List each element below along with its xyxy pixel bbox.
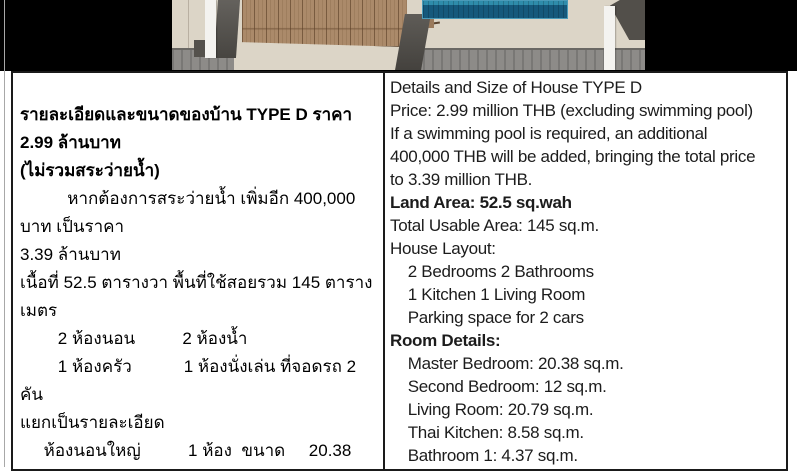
document-page: รายละเอียดและขนาดของบ้าน TYPE D ราคา 2.9… bbox=[0, 0, 797, 467]
swimming-pool bbox=[422, 0, 568, 19]
text-line: หากต้องการสระว่ายน้ำ เพิ่มอีก 400,000 บา… bbox=[20, 185, 377, 241]
concrete-shadow-band bbox=[214, 0, 240, 58]
text-line: 3.39 ล้านบาท bbox=[20, 241, 377, 269]
text-line: 2 ห้องนอน 2 ห้องน้ำ bbox=[20, 325, 377, 353]
wood-trellis-deck bbox=[242, 0, 407, 49]
text-line: If a swimming pool is required, an addit… bbox=[390, 122, 784, 145]
text-line: Parking space for 2 cars bbox=[390, 306, 784, 329]
text-line: 1 Kitchen 1 Living Room bbox=[390, 283, 784, 306]
page-top-black-band bbox=[0, 0, 797, 71]
text-line: ห้องนอนใหญ่ 1 ห้อง ขนาด 20.38 ตารางเมตร bbox=[20, 437, 377, 469]
pool-water bbox=[423, 1, 567, 18]
text-line: Second Bedroom: 12 sq.m. bbox=[390, 375, 784, 398]
text-line: Details and Size of House TYPE D bbox=[390, 76, 784, 99]
text-line: (ไม่รวมสระว่ายน้ำ) bbox=[20, 157, 377, 185]
english-details-column: Details and Size of House TYPE DPrice: 2… bbox=[385, 73, 786, 469]
page-edge-line bbox=[4, 0, 5, 467]
text-line: House Layout: bbox=[390, 237, 784, 260]
concrete-block-top-right bbox=[610, 0, 645, 40]
text-line: รายละเอียดและขนาดของบ้าน TYPE D ราคา 2.9… bbox=[20, 101, 377, 157]
text-line: Total Usable Area: 145 sq.m. bbox=[390, 214, 784, 237]
text-line: Thai Kitchen: 8.58 sq.m. bbox=[390, 421, 784, 444]
house-details-table: รายละเอียดและขนาดของบ้าน TYPE D ราคา 2.9… bbox=[11, 71, 788, 471]
text-line: เนื้อที่ 52.5 ตารางวา พื้นที่ใช้สอยรวม 1… bbox=[20, 269, 377, 325]
white-post-right bbox=[604, 6, 615, 70]
text-line: Bathroom 1: 4.37 sq.m. bbox=[390, 444, 784, 467]
text-line: Room Details: bbox=[390, 329, 784, 352]
text-line: Master Bedroom: 20.38 sq.m. bbox=[390, 352, 784, 375]
text-line: แยกเป็นรายละเอียด bbox=[20, 409, 377, 437]
text-line: 1 ห้องครัว 1 ห้องนั่งเล่น ที่จอดรถ 2 คัน bbox=[20, 353, 377, 409]
text-line: Land Area: 52.5 sq.wah bbox=[390, 191, 784, 214]
text-line: to 3.39 million THB. bbox=[390, 168, 784, 191]
text-line: Living Room: 20.79 sq.m. bbox=[390, 398, 784, 421]
text-line: Price: 2.99 million THB (excluding swimm… bbox=[390, 99, 784, 122]
thai-details-column: รายละเอียดและขนาดของบ้าน TYPE D ราคา 2.9… bbox=[13, 73, 385, 469]
house-top-view-photo bbox=[172, 0, 645, 70]
wall-panel-seam bbox=[188, 0, 189, 52]
text-line: 400,000 THB will be added, bringing the … bbox=[390, 145, 784, 168]
text-line: 2 Bedrooms 2 Bathrooms bbox=[390, 260, 784, 283]
white-post-left bbox=[205, 0, 216, 58]
